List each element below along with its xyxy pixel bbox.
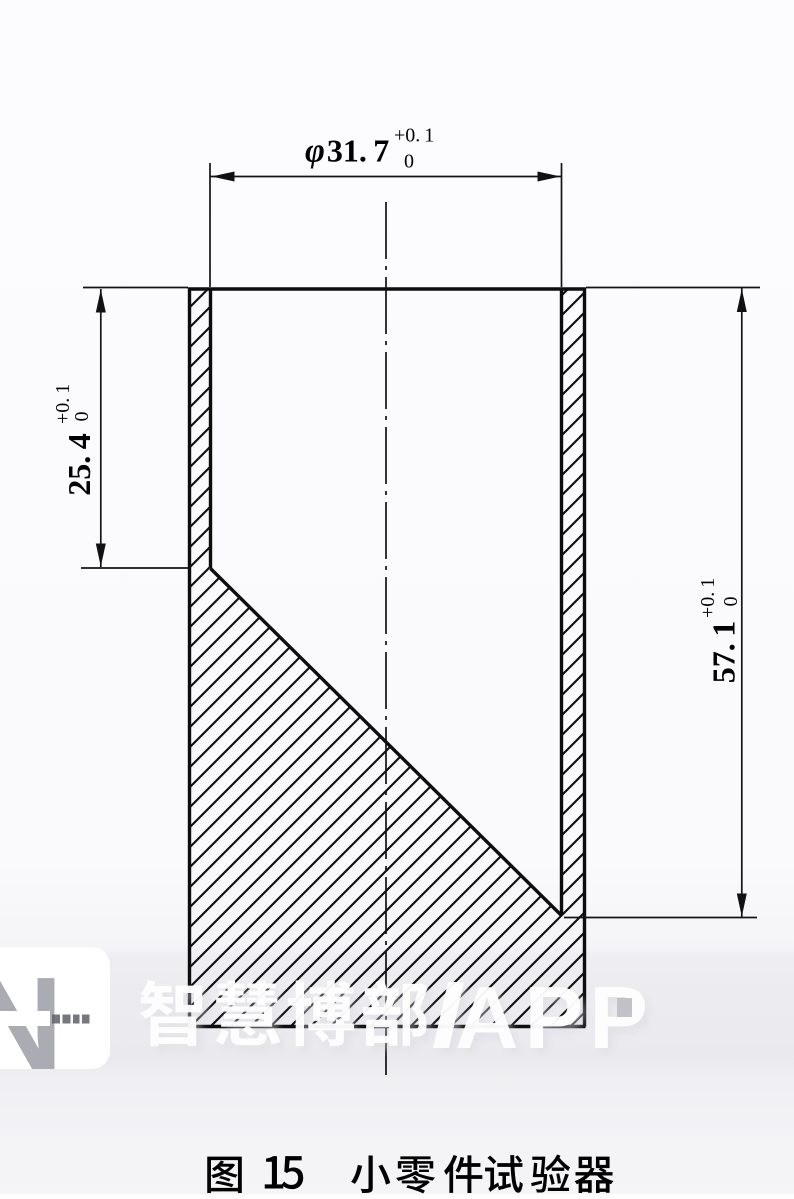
svg-text:APP: APP <box>455 968 654 1067</box>
svg-text:0: 0 <box>720 597 742 607</box>
svg-text:+0. 1: +0. 1 <box>697 578 719 618</box>
svg-text:57. 1: 57. 1 <box>706 621 742 683</box>
svg-text:0: 0 <box>71 412 93 422</box>
svg-text:25. 4: 25. 4 <box>61 433 97 495</box>
svg-text:0: 0 <box>404 151 414 173</box>
svg-text:+0. 1: +0. 1 <box>394 125 434 147</box>
svg-text:φ31. 7: φ31. 7 <box>305 133 389 170</box>
